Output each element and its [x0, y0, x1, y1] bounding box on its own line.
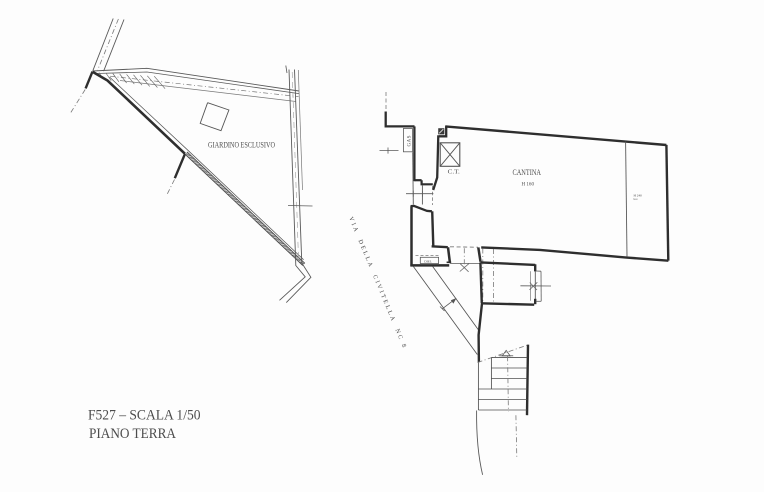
svg-text:C.T.: C.T. — [448, 169, 461, 176]
svg-text:PIANO TERRA: PIANO TERRA — [89, 425, 176, 442]
svg-text:GAS: GAS — [406, 135, 412, 146]
svg-text:H 160: H 160 — [522, 182, 535, 188]
svg-text:DIEL: DIEL — [424, 259, 432, 263]
svg-text:GIARDINO ESCLUSIVO: GIARDINO ESCLUSIVO — [208, 140, 275, 150]
svg-text:F527 – SCALA 1/50: F527 – SCALA 1/50 — [88, 407, 201, 424]
svg-text:loc.: loc. — [634, 197, 639, 201]
svg-text:CANTINA: CANTINA — [513, 167, 542, 177]
